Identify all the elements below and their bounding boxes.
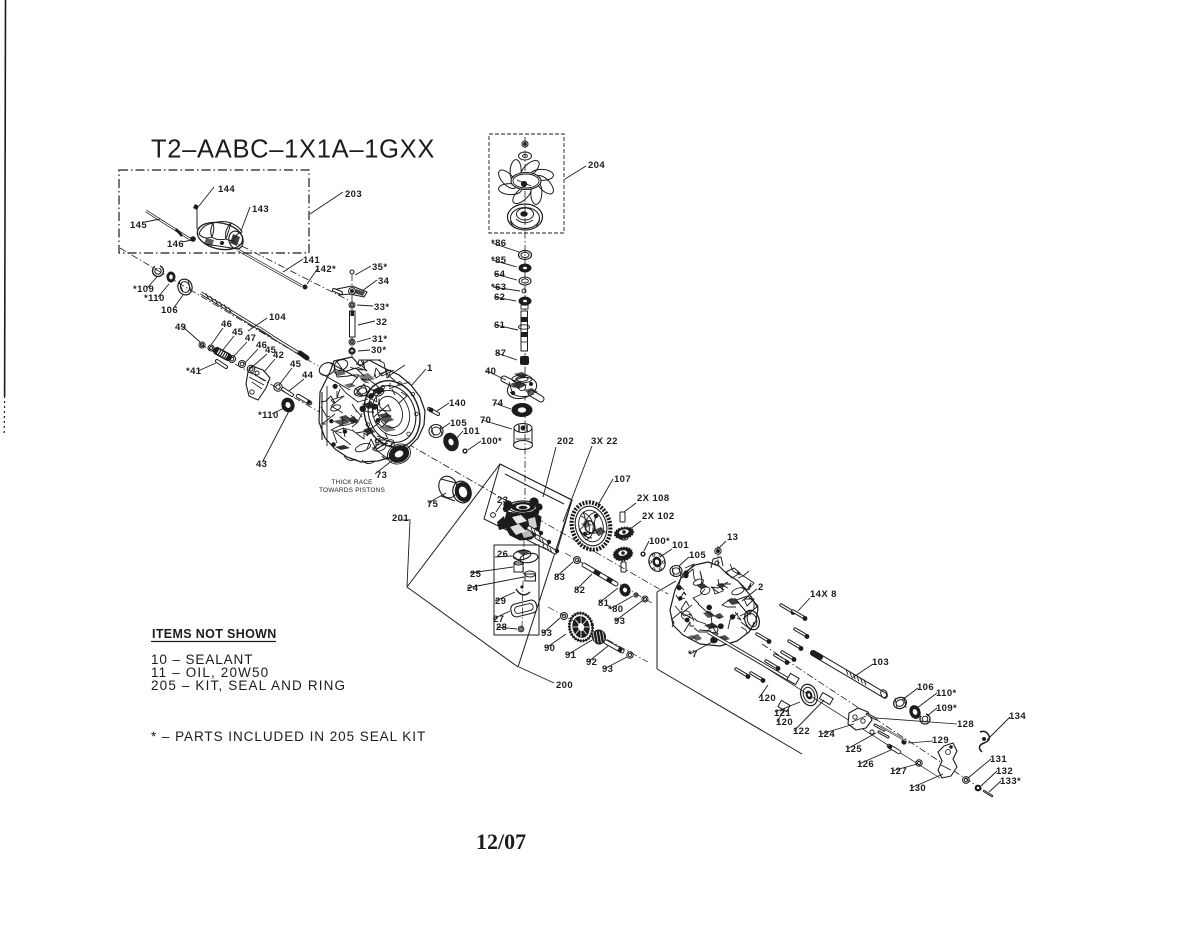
svg-text:202: 202 <box>557 436 574 447</box>
svg-text:110*: 110* <box>936 688 957 699</box>
svg-text:*86: *86 <box>491 238 506 249</box>
svg-text:74: 74 <box>492 398 504 409</box>
svg-text:*110: *110 <box>258 410 279 421</box>
svg-text:ITEMS NOT SHOWN: ITEMS NOT SHOWN <box>152 627 277 641</box>
svg-text:45: 45 <box>290 359 302 370</box>
svg-text:33*: 33* <box>374 302 389 313</box>
svg-text:62: 62 <box>494 292 505 303</box>
svg-text:75: 75 <box>427 499 439 510</box>
svg-text:44: 44 <box>302 370 314 381</box>
svg-text:13: 13 <box>727 532 738 543</box>
svg-text:61: 61 <box>494 320 506 331</box>
svg-text:*110: *110 <box>144 293 165 304</box>
svg-text:* – PARTS INCLUDED IN 205 SEAL: * – PARTS INCLUDED IN 205 SEAL KIT <box>151 729 426 744</box>
svg-text:83: 83 <box>554 572 565 583</box>
svg-text:109*: 109* <box>936 703 957 714</box>
svg-text:70: 70 <box>480 415 491 426</box>
svg-text:*80: *80 <box>608 604 623 615</box>
svg-text:24: 24 <box>467 583 479 594</box>
svg-text:THICK RACE: THICK RACE <box>331 479 373 486</box>
svg-text:203: 203 <box>345 189 362 200</box>
svg-text:87: 87 <box>495 348 506 359</box>
svg-text:128: 128 <box>957 719 974 730</box>
svg-text:103: 103 <box>872 657 889 668</box>
svg-text:*85: *85 <box>491 255 507 266</box>
svg-text:124: 124 <box>818 729 835 740</box>
svg-text:34: 34 <box>378 276 390 287</box>
svg-text:2X 108: 2X 108 <box>637 493 670 504</box>
svg-text:106: 106 <box>161 305 178 316</box>
svg-text:45: 45 <box>232 327 244 338</box>
svg-text:*7: *7 <box>688 649 698 660</box>
svg-text:91: 91 <box>565 650 577 661</box>
svg-text:49: 49 <box>175 322 186 333</box>
svg-text:23: 23 <box>497 495 508 506</box>
svg-text:47: 47 <box>245 333 256 344</box>
svg-text:40: 40 <box>485 366 496 377</box>
svg-text:143: 143 <box>252 204 269 215</box>
svg-text:26: 26 <box>497 549 508 560</box>
svg-text:104: 104 <box>269 312 286 323</box>
svg-text:2: 2 <box>758 582 764 593</box>
svg-text:133*: 133* <box>1000 776 1021 787</box>
svg-text:106: 106 <box>917 682 934 693</box>
svg-text:82: 82 <box>574 585 585 596</box>
svg-text:12/07: 12/07 <box>476 829 526 854</box>
svg-text:146: 146 <box>167 239 184 250</box>
svg-text:204: 204 <box>588 160 605 171</box>
svg-text:29: 29 <box>495 596 506 607</box>
svg-text:2X 102: 2X 102 <box>642 511 675 522</box>
svg-text:73: 73 <box>376 470 387 481</box>
svg-text:3X 22: 3X 22 <box>591 436 618 447</box>
svg-text:93: 93 <box>614 616 625 627</box>
svg-text:31*: 31* <box>372 334 387 345</box>
svg-text:42: 42 <box>273 350 284 361</box>
svg-text:205 – KIT, SEAL AND RING: 205 – KIT, SEAL AND RING <box>151 678 346 693</box>
svg-text:101: 101 <box>672 540 689 551</box>
svg-text:107: 107 <box>614 474 631 485</box>
svg-text:120: 120 <box>776 717 793 728</box>
svg-text:25: 25 <box>470 569 482 580</box>
svg-text:100*: 100* <box>481 436 502 447</box>
svg-text:144: 144 <box>218 184 235 195</box>
svg-text:14X 8: 14X 8 <box>810 589 837 600</box>
svg-text:130: 130 <box>909 783 926 794</box>
svg-text:105: 105 <box>689 550 706 561</box>
svg-text:64: 64 <box>494 269 506 280</box>
svg-text:125: 125 <box>845 744 862 755</box>
svg-text:93: 93 <box>602 664 613 675</box>
svg-text:101: 101 <box>463 426 480 437</box>
svg-text:200: 200 <box>556 680 573 691</box>
svg-text:100*: 100* <box>649 536 670 547</box>
svg-text:92: 92 <box>586 657 597 668</box>
svg-text:134: 134 <box>1009 711 1026 722</box>
svg-text:30*: 30* <box>371 345 386 356</box>
svg-text:90: 90 <box>544 643 555 654</box>
svg-text:201: 201 <box>392 513 409 524</box>
svg-text:127: 127 <box>890 766 907 777</box>
svg-text:1: 1 <box>427 363 433 374</box>
svg-text:*41: *41 <box>186 366 202 377</box>
svg-text:93: 93 <box>541 628 552 639</box>
svg-text:T2–AABC–1X1A–1GXX: T2–AABC–1X1A–1GXX <box>151 136 435 164</box>
svg-text:129: 129 <box>932 735 949 746</box>
svg-text:126: 126 <box>857 759 874 770</box>
svg-text:28: 28 <box>496 622 507 633</box>
svg-text:122: 122 <box>793 726 810 737</box>
svg-text:43: 43 <box>256 459 267 470</box>
svg-text:140: 140 <box>449 398 466 409</box>
svg-text:131: 131 <box>990 754 1007 765</box>
svg-text:120: 120 <box>759 693 776 704</box>
svg-text:TOWARDS PISTONS: TOWARDS PISTONS <box>319 487 386 494</box>
svg-text:142*: 142* <box>315 264 336 275</box>
svg-text:35*: 35* <box>372 262 387 273</box>
svg-text:46: 46 <box>221 319 232 330</box>
svg-text:145: 145 <box>130 220 147 231</box>
svg-text:32: 32 <box>376 317 387 328</box>
